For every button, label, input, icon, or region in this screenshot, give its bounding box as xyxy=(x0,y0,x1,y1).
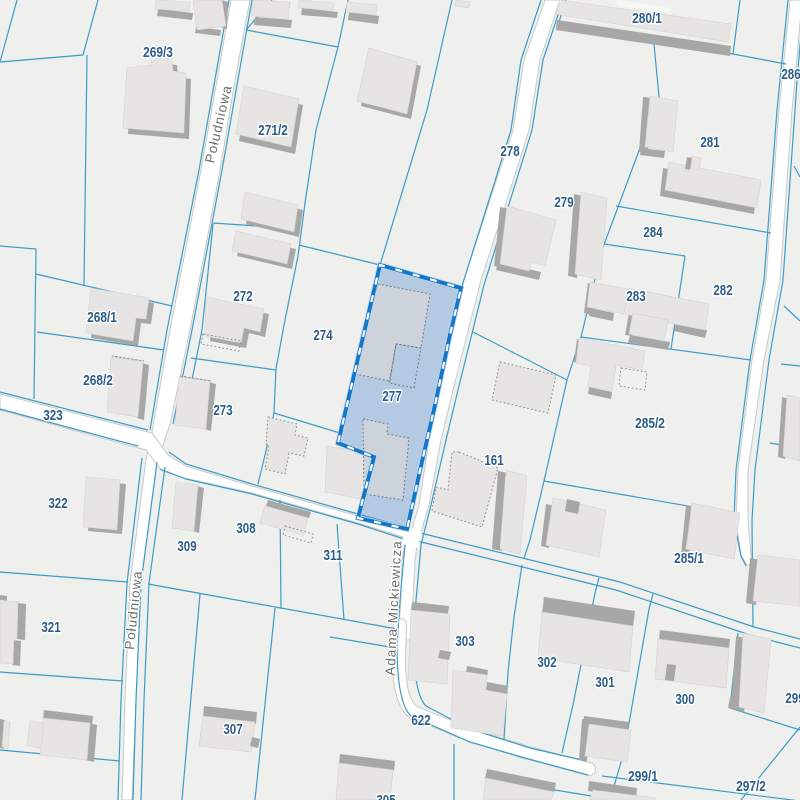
svg-text:321: 321 xyxy=(41,619,60,636)
svg-text:299/1: 299/1 xyxy=(628,768,658,785)
svg-text:286: 286 xyxy=(781,66,800,83)
svg-text:283: 283 xyxy=(626,288,645,305)
svg-text:300: 300 xyxy=(675,691,694,708)
svg-text:301: 301 xyxy=(595,674,614,691)
svg-text:280/1: 280/1 xyxy=(632,10,662,27)
svg-text:281: 281 xyxy=(700,134,719,151)
svg-text:268/1: 268/1 xyxy=(87,309,117,326)
svg-text:269/3: 269/3 xyxy=(143,44,173,61)
svg-text:307: 307 xyxy=(223,721,242,738)
svg-text:268/2: 268/2 xyxy=(83,372,113,389)
svg-text:274: 274 xyxy=(313,327,333,344)
svg-text:309: 309 xyxy=(177,538,196,555)
svg-text:285/2: 285/2 xyxy=(635,415,665,432)
svg-text:323: 323 xyxy=(43,407,62,424)
svg-text:284: 284 xyxy=(643,224,663,241)
svg-text:303: 303 xyxy=(455,633,474,650)
svg-text:302: 302 xyxy=(537,654,556,671)
svg-text:282: 282 xyxy=(713,282,732,299)
svg-text:311: 311 xyxy=(323,547,342,564)
svg-text:305: 305 xyxy=(376,792,395,800)
svg-text:297/2: 297/2 xyxy=(736,778,766,795)
svg-text:161: 161 xyxy=(484,452,503,469)
svg-text:277: 277 xyxy=(382,388,401,405)
svg-text:622: 622 xyxy=(411,712,430,729)
svg-text:299: 299 xyxy=(785,690,800,707)
svg-text:278: 278 xyxy=(500,143,519,160)
svg-text:272: 272 xyxy=(233,288,252,305)
svg-text:322: 322 xyxy=(48,495,67,512)
svg-text:271/2: 271/2 xyxy=(258,122,288,139)
svg-text:273: 273 xyxy=(213,402,232,419)
svg-text:279: 279 xyxy=(554,194,573,211)
svg-text:285/1: 285/1 xyxy=(674,550,704,567)
svg-text:308: 308 xyxy=(236,520,255,537)
